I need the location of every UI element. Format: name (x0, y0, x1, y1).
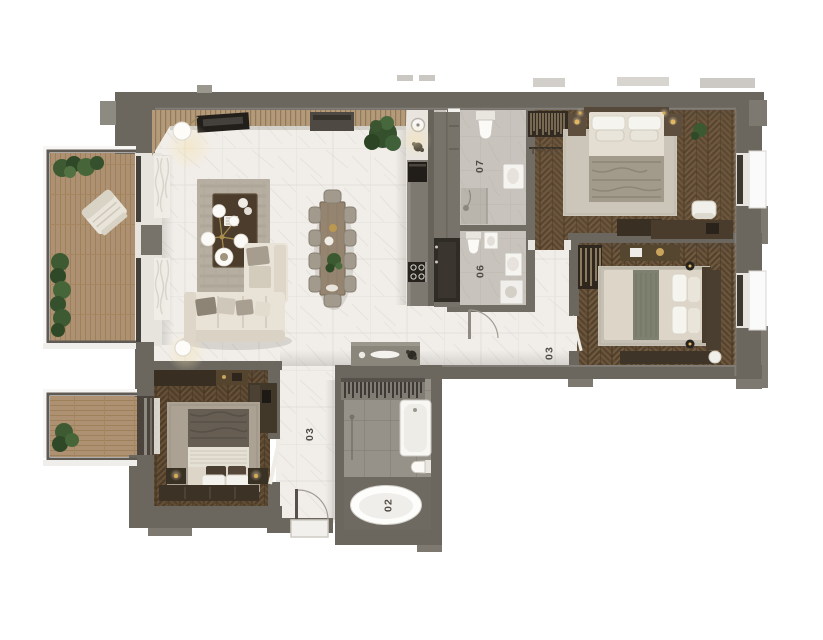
svg-text:06: 06 (475, 264, 487, 278)
svg-text:03: 03 (304, 427, 316, 441)
svg-text:07: 07 (474, 159, 486, 173)
svg-text:03: 03 (544, 346, 556, 360)
svg-text:02: 02 (383, 498, 395, 512)
